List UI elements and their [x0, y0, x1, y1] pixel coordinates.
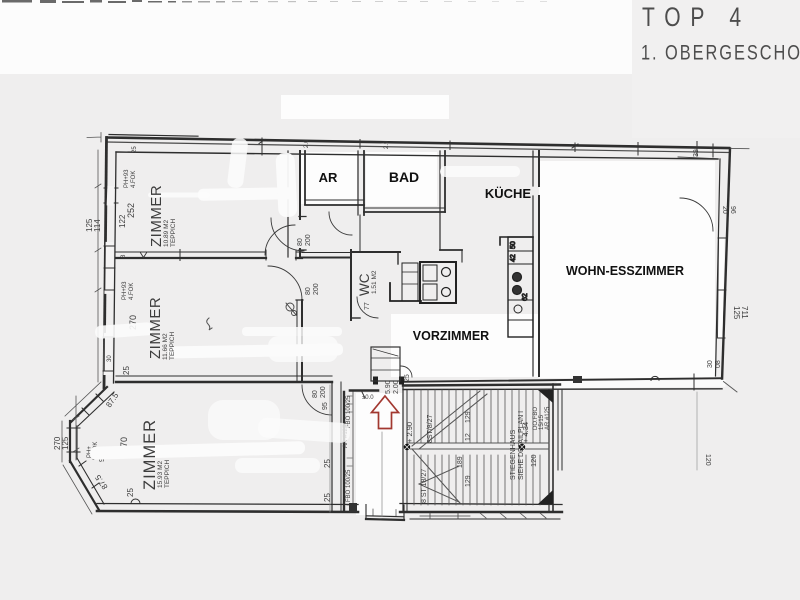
svg-text:BAD: BAD — [389, 169, 419, 185]
svg-text:50: 50 — [510, 241, 517, 249]
svg-text:11.66 M2: 11.66 M2 — [162, 333, 169, 360]
svg-text:189: 189 — [457, 456, 464, 468]
svg-text:WOHN-ESSZIMMER: WOHN-ESSZIMMER — [566, 264, 684, 278]
svg-text:42: 42 — [510, 254, 517, 262]
svg-text:8 ST 18/27: 8 ST 18/27 — [421, 469, 428, 503]
svg-text:80: 80 — [305, 287, 312, 295]
svg-text:122: 122 — [118, 214, 127, 228]
svg-text:SIEHE DETAILPLAN I: SIEHE DETAILPLAN I — [518, 411, 525, 480]
svg-text:08: 08 — [715, 360, 722, 368]
svg-text:25: 25 — [132, 146, 138, 153]
svg-text:25: 25 — [122, 366, 131, 375]
svg-text:15.93 M2: 15.93 M2 — [157, 461, 164, 488]
svg-text:252: 252 — [126, 203, 136, 218]
svg-text:711: 711 — [740, 306, 749, 319]
svg-text:77: 77 — [364, 302, 371, 310]
svg-text:AR #125: AR #125 — [545, 406, 551, 430]
svg-text:200: 200 — [313, 283, 320, 295]
svg-text:±0.0: ±0.0 — [362, 395, 374, 401]
svg-text:200: 200 — [305, 234, 312, 246]
svg-text:12: 12 — [465, 433, 472, 441]
svg-text:129: 129 — [465, 475, 472, 487]
svg-text:25: 25 — [323, 493, 332, 502]
svg-text:20: 20 — [721, 206, 728, 214]
svg-text:VORZIMMER: VORZIMMER — [413, 329, 489, 343]
svg-text:TEPPICH: TEPPICH — [169, 332, 176, 360]
svg-text:96: 96 — [729, 206, 736, 214]
svg-text:PH+93: PH+93 — [124, 169, 130, 188]
svg-text:STIEGENHAUS: STIEGENHAUS — [510, 429, 517, 480]
svg-text:8ST/8/27: 8ST/8/27 — [427, 414, 434, 443]
svg-text:2.0: 2.0 — [304, 139, 310, 148]
svg-text:80: 80 — [297, 238, 304, 246]
svg-text:62: 62 — [522, 293, 529, 301]
svg-text:120: 120 — [529, 454, 538, 467]
svg-text:FBO 100/25: FBO 100/25 — [346, 469, 352, 502]
svg-text:TEPPICH: TEPPICH — [170, 219, 177, 247]
svg-text:1.51 M2: 1.51 M2 — [371, 270, 378, 294]
svg-text:4.FOK: 4.FOK — [131, 171, 137, 188]
svg-text:30: 30 — [107, 355, 113, 362]
svg-text:120: 120 — [704, 454, 711, 466]
svg-text:2.00: 2.00 — [393, 380, 400, 394]
svg-text:125: 125 — [732, 306, 741, 320]
svg-text:KÜCHE: KÜCHE — [485, 186, 532, 201]
svg-text:30: 30 — [707, 360, 714, 368]
svg-text:1. OBERGESCHO: 1. OBERGESCHO — [641, 41, 800, 64]
svg-text:5.90: 5.90 — [385, 380, 392, 394]
svg-text:FBO 100/25: FBO 100/25 — [346, 395, 352, 428]
svg-text:+ 2.90: + 2.90 — [405, 422, 414, 443]
svg-text:129: 129 — [465, 411, 472, 423]
svg-text:2.9: 2.9 — [384, 140, 390, 149]
svg-text:25: 25 — [404, 374, 411, 382]
svg-text:PH+93: PH+93 — [122, 281, 128, 300]
svg-text:200: 200 — [320, 386, 327, 398]
svg-text:WC: WC — [357, 273, 372, 296]
svg-text:4.FOK: 4.FOK — [129, 283, 135, 300]
svg-text:10.89 M2: 10.89 M2 — [163, 220, 170, 247]
svg-text:TOP 4: TOP 4 — [642, 3, 751, 33]
svg-text:95: 95 — [322, 402, 329, 410]
svg-text:25: 25 — [323, 459, 332, 468]
svg-text:114: 114 — [93, 219, 102, 232]
svg-text:25: 25 — [126, 488, 135, 497]
svg-text:TEPPICH: TEPPICH — [164, 460, 171, 488]
svg-text:AR: AR — [319, 170, 338, 185]
svg-text:80: 80 — [312, 390, 319, 398]
